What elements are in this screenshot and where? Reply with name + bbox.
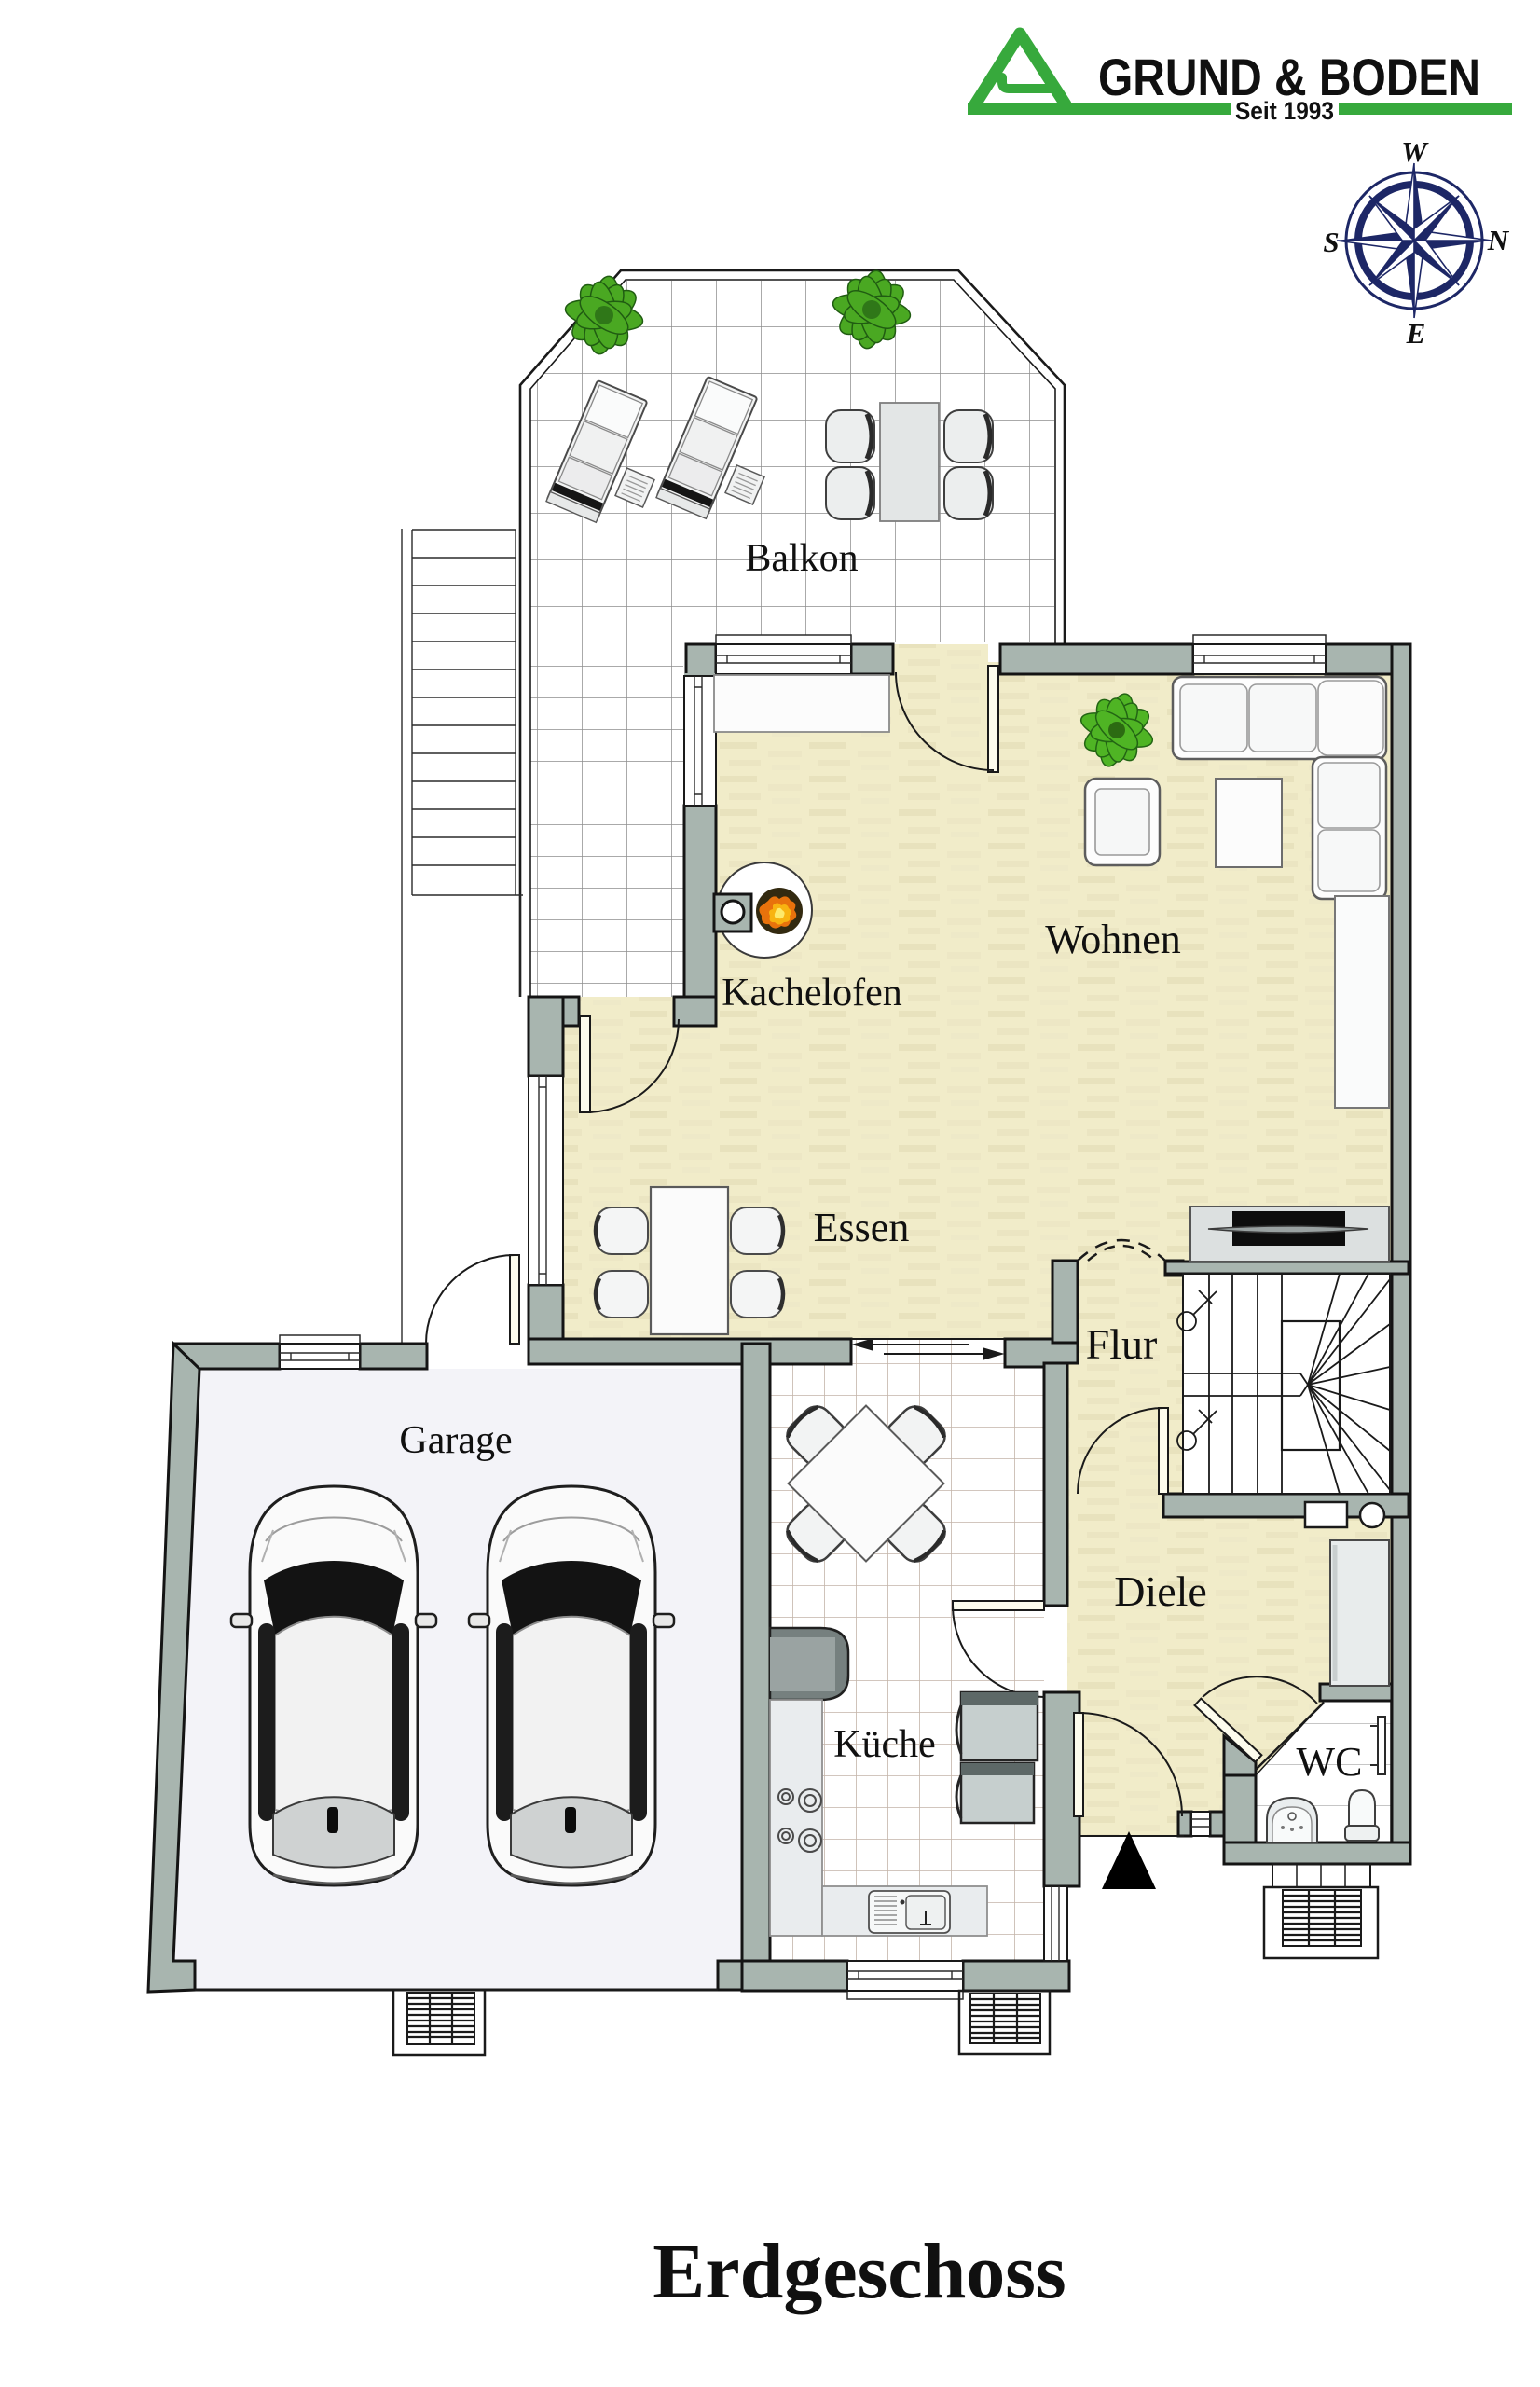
- svg-text:Wohnen: Wohnen: [1045, 917, 1181, 962]
- svg-text:Küche: Küche: [833, 1723, 936, 1766]
- svg-text:Flur: Flur: [1086, 1320, 1158, 1368]
- svg-text:Essen: Essen: [814, 1205, 910, 1250]
- svg-text:Seit 1993: Seit 1993: [1235, 97, 1334, 125]
- svg-text:E: E: [1406, 317, 1426, 350]
- svg-text:Kachelofen: Kachelofen: [722, 972, 902, 1014]
- svg-text:Balkon: Balkon: [745, 537, 858, 580]
- svg-text:Diele: Diele: [1114, 1567, 1207, 1615]
- svg-text:S: S: [1323, 226, 1339, 258]
- svg-text:Erdgeschoss: Erdgeschoss: [653, 2228, 1066, 2315]
- svg-text:Garage: Garage: [399, 1419, 512, 1462]
- svg-text:N: N: [1487, 224, 1510, 256]
- svg-text:WC: WC: [1297, 1739, 1363, 1785]
- svg-text:W: W: [1401, 135, 1429, 168]
